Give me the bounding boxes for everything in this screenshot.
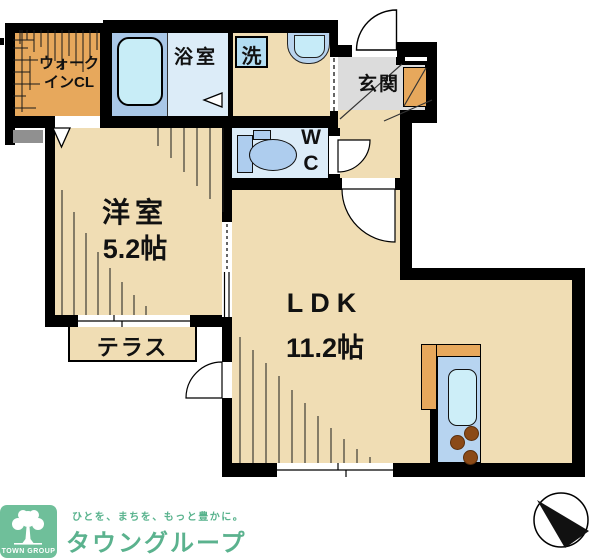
front-door-opening xyxy=(352,45,397,57)
stove-burner-1 xyxy=(450,435,465,450)
wall-top-bath xyxy=(103,20,338,33)
wc-label: W C xyxy=(296,125,326,177)
floor-plan: ウォーク インCL 浴室 洗 玄関 W C 洋室 5.2帖 LDK 11.2帖 … xyxy=(0,0,600,558)
wall-western-left xyxy=(45,120,55,327)
washbasin-bowl xyxy=(294,35,325,58)
western-room-label: 洋室 xyxy=(72,191,198,231)
ldk-side-door-opening xyxy=(222,362,232,398)
laundry-label: 洗 xyxy=(235,40,268,69)
compass xyxy=(534,493,589,548)
wall-ldk-right xyxy=(572,268,585,477)
western-room-window xyxy=(78,315,190,327)
kitchen-counter-side xyxy=(421,344,437,410)
kitchen-sink xyxy=(448,369,477,426)
western-room-size: 5.2帖 xyxy=(72,227,198,266)
wc-door-opening xyxy=(329,136,340,174)
sliding-door-opening xyxy=(222,222,232,317)
bathroom-label: 浴室 xyxy=(162,42,230,69)
brand-company-name: タウングループ xyxy=(66,523,247,558)
closet-door-opening xyxy=(55,116,100,128)
side-door-swing xyxy=(186,362,222,398)
wall-ldk-upper-right xyxy=(400,268,585,280)
wall-edge-tick xyxy=(0,38,4,45)
entrance-label: 玄関 xyxy=(346,69,412,96)
hallway-floor xyxy=(338,110,400,180)
logo-badge: TOWN GROUP xyxy=(0,505,57,558)
outdoor-step xyxy=(13,130,43,143)
wall-kitchen-partition xyxy=(430,408,437,463)
walk-in-closet-label: ウォーク インCL xyxy=(30,54,108,92)
compass-needle xyxy=(537,500,589,548)
logo-badge-label: TOWN GROUP xyxy=(0,548,57,555)
stove-burner-2 xyxy=(464,426,479,441)
wall-hall-right-outer xyxy=(400,110,412,275)
kitchen-unit xyxy=(437,356,481,463)
laundry-curtain-opening xyxy=(330,57,338,111)
ldk-window xyxy=(277,463,393,477)
stove-burner-3 xyxy=(463,450,478,465)
front-door-swing xyxy=(357,10,397,50)
ldk-size: 11.2帖 xyxy=(255,326,395,365)
wall-top-closet xyxy=(5,23,107,33)
terrace-label: テラス xyxy=(80,330,185,362)
entrance-wall-vent xyxy=(405,57,427,61)
toilet-bowl xyxy=(249,139,297,171)
ldk-hall-door-opening xyxy=(342,178,395,190)
bathtub xyxy=(117,37,163,106)
ldk-label: LDK xyxy=(260,288,390,319)
brand-tagline: ひとを、まちを、もっと豊かに。 xyxy=(72,508,244,523)
compass-circle xyxy=(534,493,588,547)
